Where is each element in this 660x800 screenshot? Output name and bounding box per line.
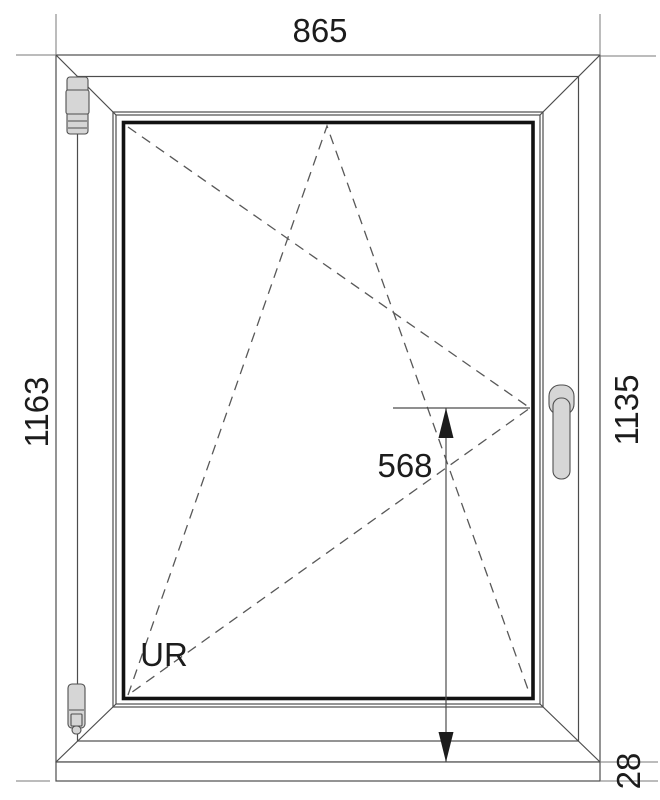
hinge-bottom-pin (71, 714, 82, 726)
hinge-top (66, 77, 89, 134)
dim-height-sash-label: 1135 (608, 375, 645, 446)
dim-sill-extension-label: 28 (610, 753, 647, 790)
hinge-bottom (68, 684, 85, 734)
dim-width-label: 865 (292, 12, 347, 49)
hinge-top-barrel (66, 90, 89, 114)
opening-code-label: UR (140, 636, 188, 673)
glass-pane (124, 123, 534, 699)
sill-extension-profile (56, 762, 600, 781)
window-frame (56, 55, 600, 781)
window-drawing-canvas: 568 865 1163 1135 28 UR (0, 0, 660, 800)
dim-height-total-label: 1163 (18, 377, 55, 448)
window-drawing: 568 865 1163 1135 28 UR (0, 0, 660, 800)
handle-lever (553, 398, 570, 479)
handle-height-label: 568 (377, 447, 432, 484)
hinge-bottom-tip (72, 726, 81, 734)
window-handle (549, 385, 574, 479)
